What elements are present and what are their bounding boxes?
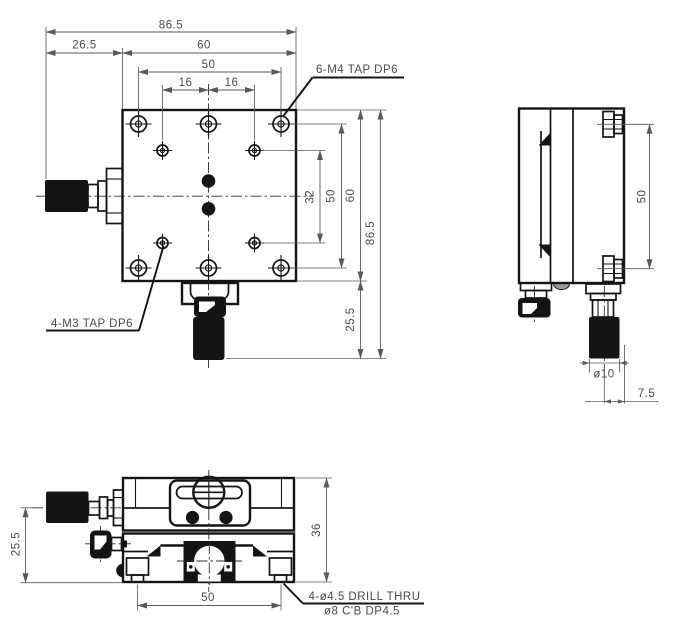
dim-total-width: 86.5 <box>159 20 183 32</box>
dim-hole-span-y: 50 <box>326 189 338 203</box>
dim-front-body-height: 36 <box>311 523 323 537</box>
drive-mechanism <box>170 477 250 526</box>
leader-m3 <box>139 246 164 331</box>
m4-hole <box>126 255 152 281</box>
dim-hole-pitch-left: 16 <box>179 77 193 89</box>
plan-stage-plate <box>123 110 297 281</box>
label-counterbore: ø8 C'B DP4.5 <box>324 606 400 618</box>
label-tap-m4: 6-M4 TAP DP6 <box>316 64 398 76</box>
front-view: 25.5 36 50 4-ø4.5 DRILL THRU ø8 C'B DP4.… <box>11 470 425 618</box>
adjustment-knob-side <box>589 317 620 359</box>
rail-profile <box>539 131 552 258</box>
engineering-drawing-canvas: 86.5 26.5 60 50 16 16 32 50 60 86.5 25.5 <box>0 0 676 633</box>
set-hole-right <box>219 511 232 524</box>
side-detent-dome <box>116 564 123 578</box>
adjustment-knob <box>193 317 225 360</box>
lock-hole-upper <box>202 174 216 188</box>
dim-total-height: 86.5 <box>365 221 377 245</box>
m3-hole <box>153 141 172 160</box>
drawing-sheet: 86.5 26.5 60 50 16 16 32 50 60 86.5 25.5 <box>0 0 676 633</box>
plan-bottom-knob-assembly <box>182 283 238 360</box>
set-hole-left <box>186 511 199 524</box>
dim-body-width: 60 <box>197 40 211 52</box>
dim-knob-axis-height: 25.5 <box>11 532 23 556</box>
dim-inner-span-y: 32 <box>305 190 317 204</box>
dim-side-hole-span: 50 <box>637 190 649 204</box>
front-left-knob-assembly <box>21 490 132 526</box>
dim-body-height: 60 <box>345 189 357 203</box>
dim-mount-hole-span: 50 <box>201 592 215 604</box>
m4-hole <box>126 111 152 137</box>
lock-hole-lower <box>202 202 216 216</box>
bearing-bracket <box>177 541 242 585</box>
leader-m4 <box>283 78 313 117</box>
m4-hole <box>196 111 222 137</box>
side-view: 50 ø10 7.5 <box>518 109 659 404</box>
ball-detent <box>554 284 570 290</box>
dim-hole-span-x: 50 <box>202 59 216 71</box>
dim-knob-offset-bottom: 25.5 <box>345 307 357 331</box>
counterbore-hole-right <box>270 558 292 582</box>
dim-knob-axis-offset: 7.5 <box>638 388 656 400</box>
adjustment-knob <box>45 180 88 212</box>
plan-view: 86.5 26.5 60 50 16 16 32 50 60 86.5 25.5 <box>36 20 404 371</box>
leader-drill <box>284 584 304 604</box>
counterbore-hole-left <box>127 558 149 582</box>
front-annotations: 4-ø4.5 DRILL THRU ø8 C'B DP4.5 <box>284 584 425 618</box>
dim-knob-offset-left: 26.5 <box>72 40 96 52</box>
dim-hole-pitch-right: 16 <box>225 77 239 89</box>
adjustment-knob-front <box>46 492 89 524</box>
side-underside <box>518 283 621 368</box>
m4-tap-holes <box>126 111 295 281</box>
label-drill-thru: 4-ø4.5 DRILL THRU <box>309 591 421 603</box>
label-tap-m3: 4-M3 TAP DP6 <box>51 318 133 330</box>
m4-hole <box>196 255 222 281</box>
